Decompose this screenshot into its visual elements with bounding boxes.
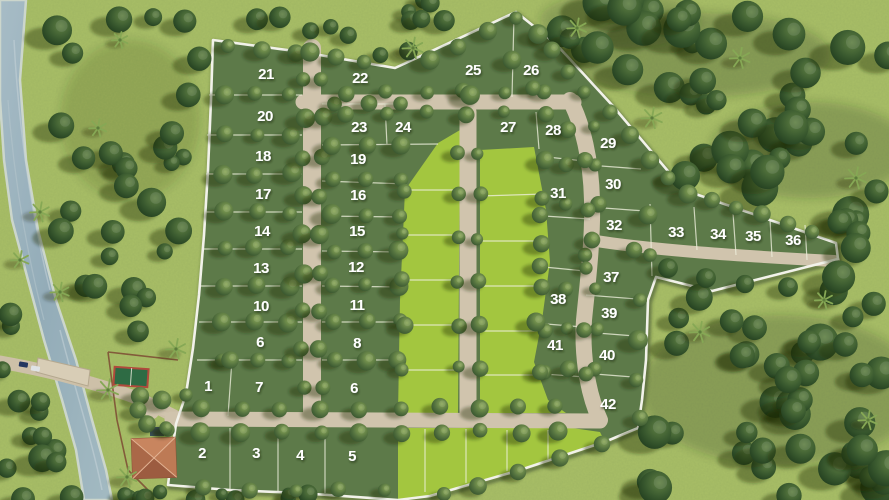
lot-number-label: 22 bbox=[352, 70, 368, 87]
lot-number-label: 40 bbox=[599, 347, 615, 364]
lot-number-label: 30 bbox=[605, 176, 621, 193]
lot-number-label: 6 bbox=[350, 380, 358, 397]
lot-number-label: 5 bbox=[348, 448, 356, 465]
lot-number-label: 8 bbox=[353, 335, 361, 352]
lot-number-label: 20 bbox=[257, 108, 273, 125]
lot-number-label: 32 bbox=[606, 217, 622, 234]
lot-number-label: 2 bbox=[198, 445, 206, 462]
lot-number-label: 41 bbox=[547, 337, 563, 354]
lot-number-label: 21 bbox=[258, 66, 274, 83]
lot-number-label: 14 bbox=[254, 223, 271, 240]
lot-number-label: 19 bbox=[350, 151, 366, 168]
lot-number-label: 39 bbox=[601, 305, 617, 322]
lot-number-label: 6 bbox=[256, 334, 264, 351]
lot-number-label: 23 bbox=[351, 119, 367, 136]
lot-number-label: 35 bbox=[745, 228, 761, 245]
clubhouse-roof bbox=[131, 437, 176, 479]
lot-number-label: 18 bbox=[255, 148, 271, 165]
master-plan-svg: 1234566781011121314151617181920212223242… bbox=[0, 0, 889, 500]
lot-number-label: 1 bbox=[204, 378, 212, 395]
lot-number-label: 26 bbox=[523, 62, 539, 79]
lot-number-label: 42 bbox=[600, 396, 616, 413]
lot-number-label: 15 bbox=[349, 223, 365, 240]
tennis-court bbox=[113, 367, 148, 387]
lot-number-label: 10 bbox=[253, 298, 269, 315]
lot-number-label: 36 bbox=[785, 232, 801, 249]
lot-number-label: 29 bbox=[600, 135, 616, 152]
lot-number-label: 17 bbox=[255, 186, 271, 203]
site-plan-screenshot: 1234566781011121314151617181920212223242… bbox=[0, 0, 889, 500]
lot-number-label: 25 bbox=[465, 62, 481, 79]
lot-number-label: 13 bbox=[253, 260, 269, 277]
lot-number-label: 28 bbox=[545, 122, 561, 139]
lot-number-label: 16 bbox=[350, 187, 366, 204]
lot-number-label: 12 bbox=[348, 259, 364, 276]
lot-number-label: 3 bbox=[252, 445, 260, 462]
lot-number-label: 4 bbox=[296, 447, 305, 464]
lot-number-label: 31 bbox=[550, 185, 566, 202]
lot-number-label: 11 bbox=[350, 297, 365, 314]
lot-number-label: 37 bbox=[603, 269, 619, 286]
lot-number-label: 24 bbox=[395, 119, 412, 136]
lot-number-label: 7 bbox=[255, 379, 263, 396]
lot-number-label: 38 bbox=[550, 291, 566, 308]
road-bottom-horizontal bbox=[172, 419, 600, 421]
lot-number-label: 27 bbox=[500, 119, 516, 136]
lot-number-label: 34 bbox=[710, 226, 727, 243]
lot-number-label: 33 bbox=[668, 224, 684, 241]
